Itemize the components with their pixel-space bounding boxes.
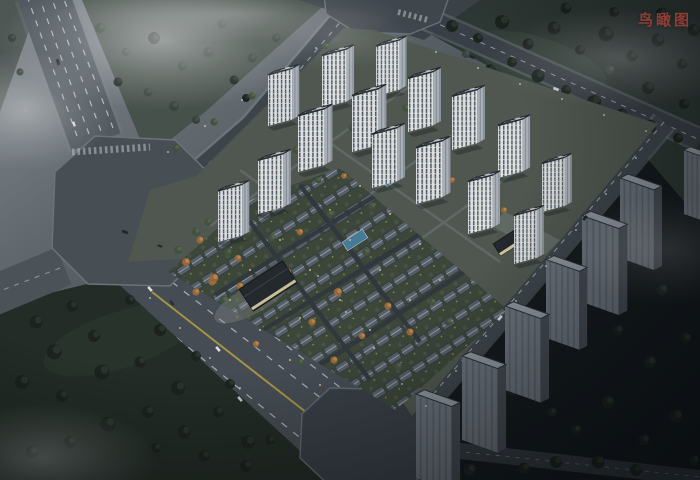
aerial-rendering: 鸟瞰图 <box>0 0 700 480</box>
view-label: 鸟瞰图 <box>638 9 692 30</box>
vignette <box>0 0 700 480</box>
rendering-canvas <box>0 0 700 480</box>
